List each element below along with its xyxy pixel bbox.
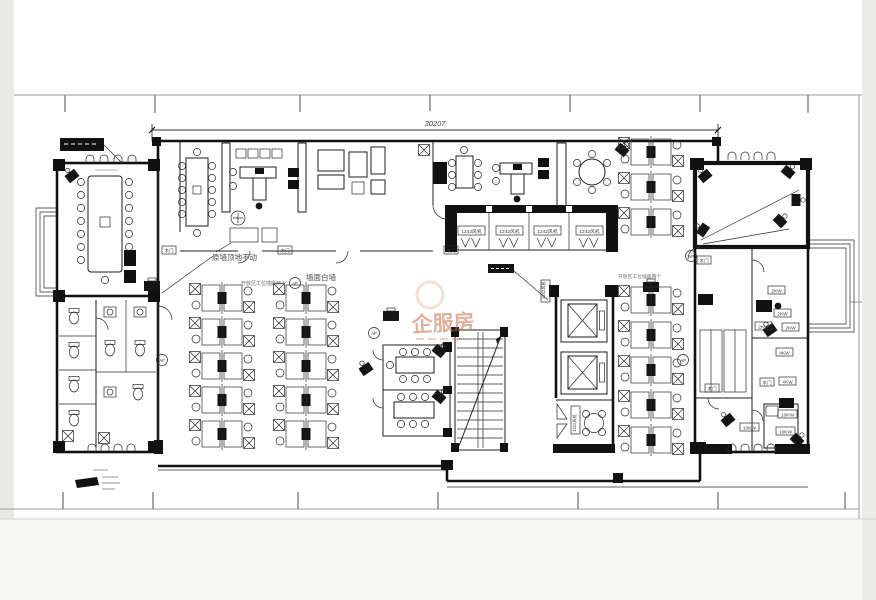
door-tag: 木门 <box>707 385 717 392</box>
door-tag: 木门 <box>762 379 772 386</box>
note-wall-fixed: 原墙顶地不动 <box>212 252 257 262</box>
sheet-frame <box>0 0 876 600</box>
power-label: 2KW <box>785 325 796 331</box>
ap-marker: AP <box>292 281 298 286</box>
power-label: 2KW <box>758 324 769 330</box>
ap-marker: AP <box>688 254 694 259</box>
ap-marker: AP <box>680 358 686 363</box>
fcu-label: 1242风机 <box>537 228 557 235</box>
door-tag: 木门 <box>164 247 174 254</box>
floor-plan-drawing: 30207 <box>0 0 876 600</box>
door-tag: 木门 <box>699 257 709 264</box>
dimension-value: 30207 <box>425 119 447 128</box>
sheet-right-margin <box>862 0 876 600</box>
power-label: 10KW <box>781 412 795 418</box>
power-label: 4KW <box>782 379 793 385</box>
door-tag: 木门 <box>446 247 456 254</box>
door-tag: 木门 <box>280 247 290 254</box>
fcu-label: 1242风机 <box>499 228 519 235</box>
power-label: 2KW <box>771 288 782 294</box>
power-label: 10KW <box>779 429 793 435</box>
fcu-label: 1242风机 <box>579 228 599 235</box>
power-label: 4KW <box>779 350 790 356</box>
sheet-left-margin <box>0 0 14 600</box>
fcu-label-vertical: 1242风机 <box>540 280 547 299</box>
ap-marker: AP <box>371 331 377 336</box>
fcu-label-vertical: 1242风机 <box>571 413 578 432</box>
fcu-label: 1242风机 <box>461 228 481 235</box>
watermark-text: 企服房 <box>410 310 475 337</box>
note-white-wall: 墙面白墙 <box>306 272 336 282</box>
ap-marker: AP <box>159 358 165 363</box>
power-label: 2KW <box>777 311 788 317</box>
floor-plan-sheet: 30207 <box>0 0 876 600</box>
power-label: 10KW <box>743 425 757 431</box>
